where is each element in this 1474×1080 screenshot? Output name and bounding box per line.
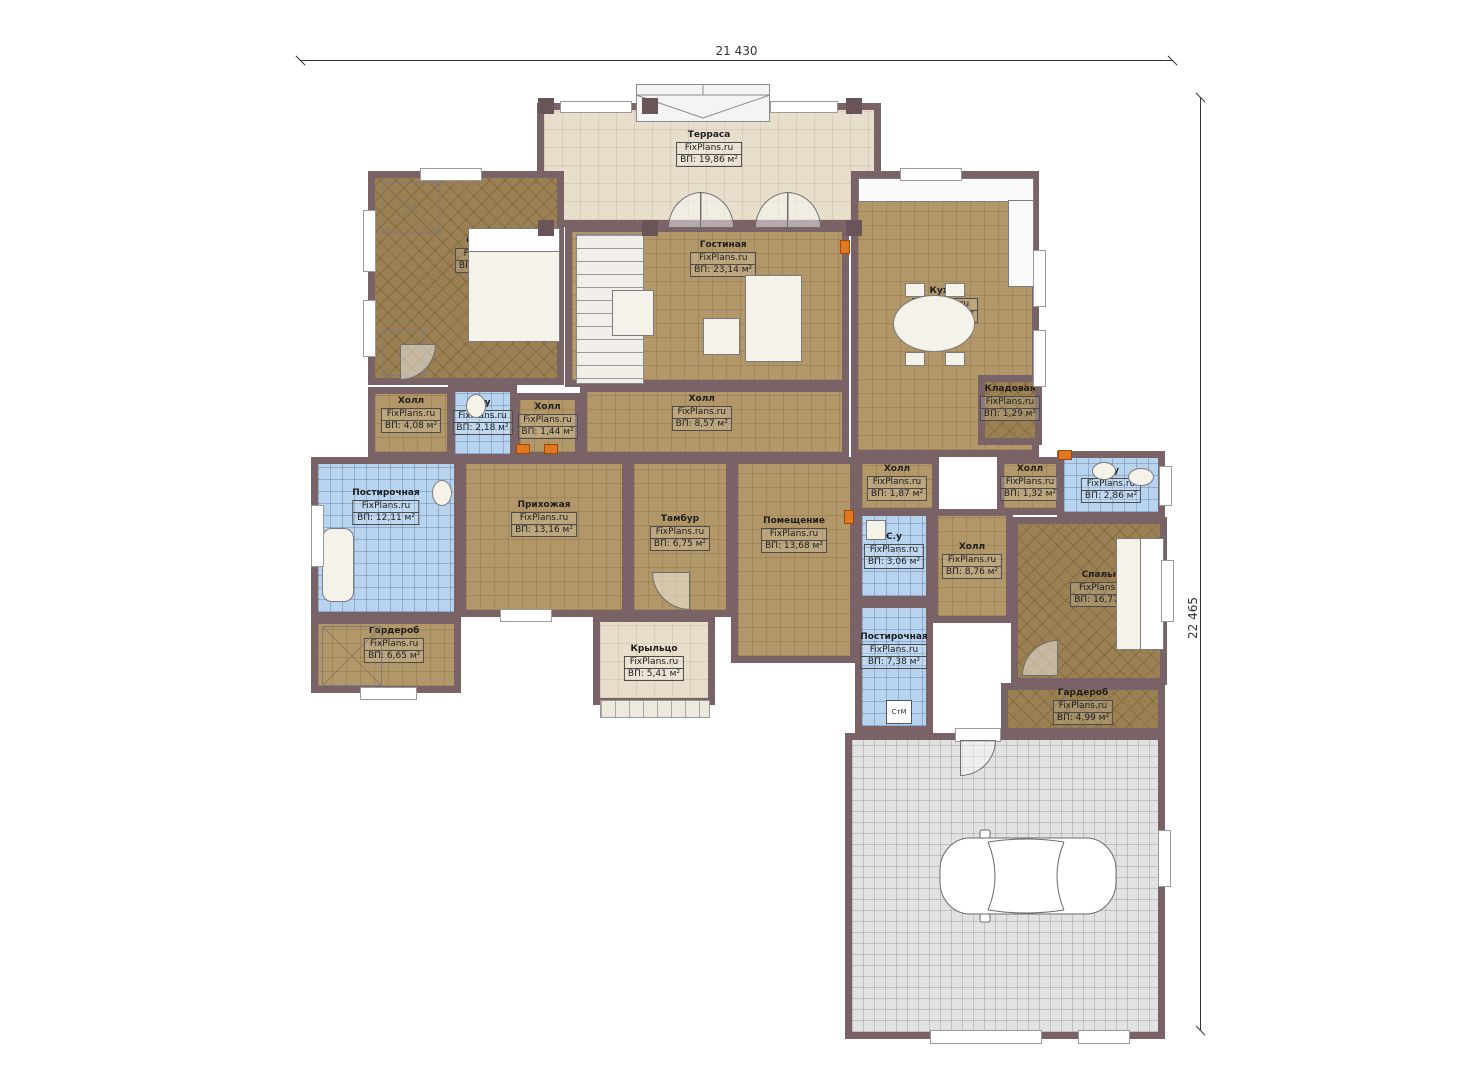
room-watermark: FixPlans.ru (672, 406, 732, 419)
room-area: ВП: 7,38 м² (860, 657, 927, 669)
room-area: ВП: 3,06 м² (864, 557, 924, 569)
sofa (745, 275, 802, 362)
dimension-right: 22 465 (1192, 98, 1210, 1030)
window (560, 101, 632, 113)
porch-steps (600, 700, 710, 718)
room-area: ВП: 4,08 м² (381, 421, 441, 433)
room-hall-main: Холл FixPlans.ru ВП: 8,57 м² (587, 392, 842, 452)
bathtub (322, 528, 354, 602)
room-name: Постирочная (352, 488, 419, 499)
room-watermark: FixPlans.ru (624, 656, 684, 669)
room-area: ВП: 4,99 м² (1053, 713, 1113, 725)
window (1159, 466, 1172, 506)
room-area: ВП: 1,29 м² (980, 409, 1040, 421)
room-watermark: FixPlans.ru (980, 396, 1040, 409)
toilet (1128, 468, 1154, 486)
window (770, 101, 838, 113)
wardrobe-unit (322, 626, 382, 686)
room-name: Холл (672, 394, 732, 405)
room-watermark: FixPlans.ru (650, 526, 710, 539)
room-watermark: FixPlans.ru (690, 252, 756, 265)
radiator-marker (844, 510, 854, 524)
dimension-line (300, 60, 1173, 61)
room-watermark: FixPlans.ru (381, 408, 441, 421)
washing-machine: СтМ (886, 700, 912, 724)
room-name: Холл (1000, 464, 1060, 475)
car-drawing (936, 828, 1120, 924)
sink (1092, 462, 1116, 480)
room-name: Холл (942, 542, 1002, 553)
terrace-post (642, 98, 658, 114)
room-name: Кладовая (980, 384, 1040, 395)
terrace-post (538, 220, 554, 236)
dimension-height-label: 22 465 (1186, 591, 1200, 645)
radiator-marker (1058, 450, 1072, 460)
room-name: Прихожая (511, 500, 577, 511)
dimension-top: 21 430 (300, 52, 1173, 70)
room-name: Помещение (761, 516, 827, 527)
room-area: ВП: 13,16 м² (511, 525, 577, 537)
room-watermark: FixPlans.ru (517, 414, 577, 427)
window (1078, 1030, 1130, 1044)
window (311, 505, 324, 567)
radiator-marker (840, 240, 850, 254)
window (900, 168, 962, 181)
radiator-marker (516, 444, 530, 454)
window (363, 210, 376, 272)
room-area: ВП: 5,41 м² (624, 669, 684, 681)
window (363, 300, 376, 357)
room-watermark: FixPlans.ru (352, 500, 419, 513)
room-watermark: FixPlans.ru (1053, 700, 1113, 713)
window (1161, 560, 1174, 622)
room-area: ВП: 2,18 м² (452, 423, 512, 435)
room-watermark: FixPlans.ru (1000, 476, 1060, 489)
window (500, 609, 552, 622)
terrace-post (846, 220, 862, 236)
room-name: Терраса (676, 130, 742, 141)
room-wardrobe-2: Гардероб FixPlans.ru ВП: 4,99 м² (1008, 690, 1158, 728)
chair (945, 283, 965, 297)
room-watermark: FixPlans.ru (942, 554, 1002, 567)
dining-table (893, 295, 975, 352)
room-area: ВП: 1,32 м² (1000, 489, 1060, 501)
terrace-post (846, 98, 862, 114)
window (360, 687, 417, 700)
sink (866, 520, 886, 540)
room-name: Холл (867, 464, 927, 475)
dimension-line (1200, 98, 1201, 1030)
fireplace (612, 290, 654, 336)
room-name: Постирочная (860, 632, 927, 643)
room-name: Холл (381, 396, 441, 407)
room-hall-1: Холл FixPlans.ru ВП: 4,08 м² (375, 394, 447, 452)
room-area: ВП: 13,68 м² (761, 541, 827, 553)
room-watermark: FixPlans.ru (860, 644, 927, 657)
room-area: ВП: 6,75 м² (650, 539, 710, 551)
room-area: ВП: 1,44 м² (517, 427, 577, 439)
window (1033, 330, 1046, 387)
window (1158, 830, 1171, 887)
window (420, 168, 482, 181)
room-hall-3: Холл FixPlans.ru ВП: 1,87 м² (862, 464, 932, 508)
kitchen-counter (858, 178, 1034, 202)
room-hall-5: Холл FixPlans.ru ВП: 8,76 м² (938, 516, 1006, 616)
terrace-post (538, 98, 554, 114)
toilet (466, 394, 486, 418)
coffee-table (703, 318, 740, 355)
room-watermark: FixPlans.ru (864, 544, 924, 557)
room-watermark: FixPlans.ru (676, 142, 742, 155)
room-watermark: FixPlans.ru (761, 528, 827, 541)
room-area: ВП: 1,87 м² (867, 489, 927, 501)
kitchen-counter (1008, 200, 1034, 287)
window (1033, 250, 1046, 307)
room-hall-4: Холл FixPlans.ru ВП: 1,32 м² (1004, 464, 1056, 508)
room-area: ВП: 19,86 м² (676, 155, 742, 167)
chair (905, 352, 925, 366)
room-utility: Помещение FixPlans.ru ВП: 13,68 м² (738, 464, 850, 656)
room-name: Гостиная (690, 240, 756, 251)
room-area: ВП: 8,57 м² (672, 419, 732, 431)
chair (945, 352, 965, 366)
wardrobe-unit (382, 182, 440, 234)
room-name: Холл (517, 402, 577, 413)
room-name: Тамбур (650, 514, 710, 525)
room-watermark: FixPlans.ru (867, 476, 927, 489)
room-entry-hall: Прихожая FixPlans.ru ВП: 13,16 м² (466, 464, 622, 610)
room-name: Крыльцо (624, 644, 684, 655)
room-area: ВП: 2,86 м² (1081, 491, 1141, 503)
room-watermark: FixPlans.ru (511, 512, 577, 525)
toilet (432, 480, 452, 506)
chair (905, 283, 925, 297)
dimension-width-label: 21 430 (710, 44, 764, 58)
room-area: ВП: 8,76 м² (942, 567, 1002, 579)
floor-plan: 21 430 22 465 Терраса FixPlans.ru ВП: 19… (0, 0, 1474, 1080)
room-storage: Кладовая FixPlans.ru ВП: 1,29 м² (985, 382, 1035, 438)
room-area: ВП: 12,11 м² (352, 513, 419, 525)
room-porch: Крыльцо FixPlans.ru ВП: 5,41 м² (600, 622, 708, 698)
terrace-post (642, 220, 658, 236)
radiator-marker (544, 444, 558, 454)
room-name: Гардероб (1053, 688, 1113, 699)
garage-door (930, 1030, 1042, 1044)
